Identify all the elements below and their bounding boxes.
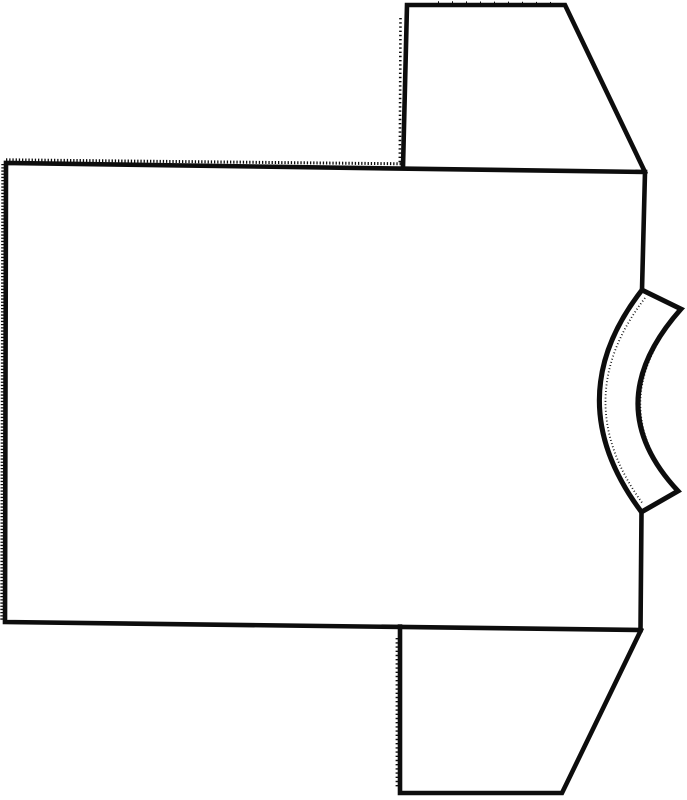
upper-sleeve-outline (403, 5, 645, 172)
torso-panel-outline (5, 163, 645, 630)
neckband-outer-edge (638, 290, 681, 512)
lower-sleeve-outline (400, 627, 641, 794)
upper-sleeve-seam-serration (400, 18, 401, 164)
hem-edge-serration (2, 164, 3, 621)
tshirt-line-drawing (0, 0, 687, 800)
drawing-canvas (0, 0, 687, 800)
